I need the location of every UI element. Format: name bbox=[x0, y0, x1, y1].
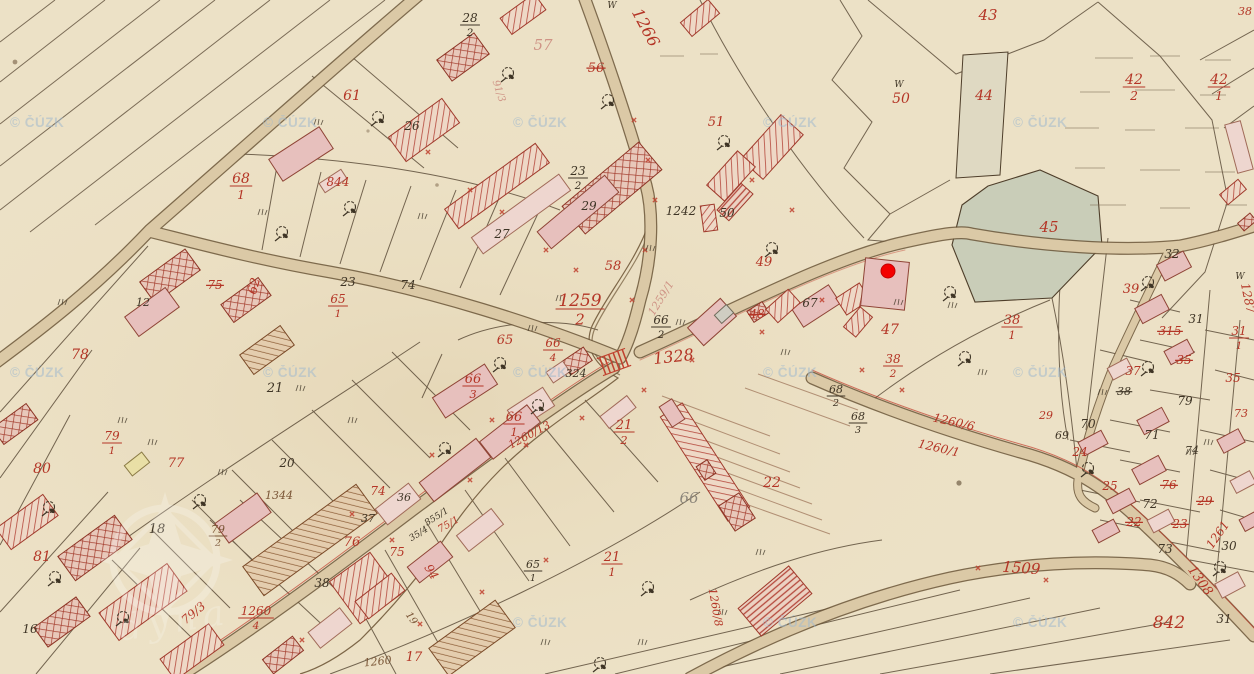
parcel-label: 65 bbox=[497, 333, 514, 348]
svg-text:324: 324 bbox=[566, 367, 587, 380]
svg-text:1: 1 bbox=[1236, 340, 1243, 352]
parcel-label: 844 bbox=[327, 175, 350, 189]
svg-text:42: 42 bbox=[1209, 72, 1228, 88]
parcel-label: 78 bbox=[71, 347, 89, 363]
parcel-label: 38 bbox=[1238, 5, 1252, 18]
svg-text:68: 68 bbox=[851, 410, 865, 423]
svg-text:81: 81 bbox=[33, 549, 51, 565]
parcel-label: 26 bbox=[403, 119, 420, 133]
svg-text:79: 79 bbox=[104, 429, 120, 443]
parcel-label: 17 bbox=[406, 650, 423, 665]
svg-text:50: 50 bbox=[719, 206, 735, 220]
parcel-label: 73 bbox=[1234, 407, 1248, 420]
parcel-label: 37 bbox=[1125, 364, 1141, 378]
parcel-label: 77 bbox=[168, 456, 185, 471]
parcel-label: 58 bbox=[605, 259, 622, 274]
svg-text:12: 12 bbox=[136, 296, 150, 309]
cuzk-watermark: © ČÚZK bbox=[10, 115, 64, 130]
svg-text:39: 39 bbox=[1123, 282, 1140, 297]
svg-text:74: 74 bbox=[370, 484, 385, 498]
parcel-label: 29 bbox=[580, 199, 597, 213]
parcel-label: 30 bbox=[1221, 539, 1237, 553]
parcel-label: 23 bbox=[1171, 517, 1189, 531]
svg-text:47: 47 bbox=[880, 322, 899, 338]
svg-text:31: 31 bbox=[1231, 324, 1246, 338]
svg-text:2: 2 bbox=[574, 180, 582, 192]
svg-text:24: 24 bbox=[1071, 445, 1087, 459]
cuzk-watermark: © ČÚZK bbox=[763, 115, 817, 130]
parcel-label: W bbox=[607, 1, 617, 11]
svg-text:17: 17 bbox=[406, 650, 423, 665]
svg-text:75: 75 bbox=[389, 545, 404, 559]
parcel-label: 71 bbox=[1144, 428, 1159, 442]
parcel-label: 35 bbox=[1225, 371, 1240, 385]
svg-text:66: 66 bbox=[679, 489, 699, 507]
parcel-label: 1509 bbox=[1002, 558, 1042, 579]
svg-text:22: 22 bbox=[762, 475, 781, 491]
svg-text:1: 1 bbox=[335, 308, 342, 320]
svg-text:21: 21 bbox=[603, 550, 621, 565]
parcel-label: 1344 bbox=[265, 489, 293, 502]
svg-text:2: 2 bbox=[619, 433, 627, 447]
svg-text:79: 79 bbox=[1177, 394, 1193, 408]
svg-text:43: 43 bbox=[977, 6, 997, 24]
svg-text:2: 2 bbox=[466, 27, 474, 39]
svg-text:38: 38 bbox=[1238, 5, 1252, 18]
parcel-label: 38 bbox=[314, 576, 330, 590]
svg-text:29: 29 bbox=[1038, 409, 1053, 422]
svg-text:2: 2 bbox=[889, 368, 897, 380]
svg-text:1509: 1509 bbox=[1002, 558, 1042, 579]
parcel-label: 38 bbox=[1116, 385, 1133, 398]
parcel-label: 23 bbox=[339, 275, 356, 289]
parcel-label: W bbox=[894, 80, 904, 90]
svg-text:3: 3 bbox=[855, 425, 861, 436]
svg-text:16: 16 bbox=[22, 622, 38, 636]
svg-text:20: 20 bbox=[278, 456, 295, 470]
cuzk-watermark: © ČÚZK bbox=[1013, 615, 1067, 630]
svg-text:45: 45 bbox=[1038, 218, 1058, 236]
svg-text:1259: 1259 bbox=[558, 291, 601, 311]
parcel-label: 29 bbox=[1196, 494, 1214, 508]
parcel-label: 75 bbox=[389, 545, 404, 559]
svg-text:80: 80 bbox=[33, 461, 51, 477]
parcel-label: 48 bbox=[748, 307, 766, 321]
svg-text:1: 1 bbox=[237, 188, 245, 202]
svg-text:38: 38 bbox=[885, 352, 901, 366]
svg-text:73: 73 bbox=[1234, 407, 1248, 420]
svg-text:W: W bbox=[1235, 272, 1245, 282]
cuzk-watermark: © ČÚZK bbox=[513, 115, 567, 130]
parcel-label: 27 bbox=[493, 227, 510, 241]
parcel-label: 1242 bbox=[666, 204, 697, 218]
parcel-label: 75 bbox=[206, 278, 224, 292]
parcel-label: 72 bbox=[1142, 497, 1157, 511]
cadastral-map-viewport[interactable]: 12664350444224213861844681575691/3514948… bbox=[0, 0, 1254, 674]
svg-text:30: 30 bbox=[1221, 539, 1237, 553]
svg-text:1: 1 bbox=[1215, 89, 1223, 103]
parcel-label: 56 bbox=[586, 61, 605, 76]
svg-text:38: 38 bbox=[314, 576, 330, 590]
svg-text:29: 29 bbox=[580, 199, 597, 213]
svg-text:1: 1 bbox=[530, 573, 536, 584]
svg-text:37: 37 bbox=[361, 512, 375, 525]
parcel-label: 39 bbox=[1123, 282, 1140, 297]
svg-text:44: 44 bbox=[974, 88, 993, 104]
parcel-label: 70 bbox=[1080, 417, 1096, 431]
map-marker-dot[interactable] bbox=[881, 264, 895, 278]
svg-text:32: 32 bbox=[1164, 247, 1179, 261]
svg-text:1: 1 bbox=[608, 565, 615, 579]
cuzk-watermark: © ČÚZK bbox=[513, 365, 567, 380]
svg-text:31: 31 bbox=[1216, 612, 1231, 626]
svg-text:37: 37 bbox=[1125, 364, 1141, 378]
svg-text:W: W bbox=[894, 80, 904, 90]
svg-text:58: 58 bbox=[605, 259, 622, 274]
parcel-label: 61 bbox=[343, 88, 361, 104]
svg-text:35: 35 bbox=[1225, 371, 1240, 385]
svg-text:23: 23 bbox=[569, 164, 586, 178]
parcel-label: 315 bbox=[1157, 324, 1183, 338]
svg-text:74: 74 bbox=[1185, 444, 1199, 457]
parcel-label: 47 bbox=[880, 322, 899, 338]
svg-text:3: 3 bbox=[469, 387, 476, 401]
svg-text:23: 23 bbox=[339, 275, 356, 289]
svg-text:26: 26 bbox=[403, 119, 420, 133]
parcel-label: 73 bbox=[1157, 542, 1173, 556]
svg-text:68: 68 bbox=[829, 383, 843, 396]
svg-text:68: 68 bbox=[232, 171, 250, 187]
svg-text:72: 72 bbox=[1142, 497, 1157, 511]
parcel-label: 31 bbox=[1216, 612, 1231, 626]
parcel-label: 74 bbox=[400, 278, 415, 292]
svg-text:842: 842 bbox=[1153, 613, 1185, 633]
parcel-label: 50 bbox=[892, 91, 910, 107]
parcel-label: 76 bbox=[1160, 478, 1178, 492]
parcel-label: 35 bbox=[1175, 353, 1193, 367]
parcel-label: 324 bbox=[566, 367, 587, 380]
parcel-label: 66 bbox=[679, 489, 699, 507]
parcel-label: 57 bbox=[533, 36, 553, 54]
svg-text:36: 36 bbox=[397, 491, 411, 504]
cuzk-watermark: © ČÚZK bbox=[1013, 365, 1067, 380]
parcel-label: 842 bbox=[1153, 613, 1185, 633]
svg-text:66: 66 bbox=[506, 410, 523, 425]
svg-text:4: 4 bbox=[252, 620, 260, 632]
parcel-label: 31 bbox=[1188, 312, 1203, 326]
cuzk-watermark: © ČÚZK bbox=[763, 615, 817, 630]
svg-text:38: 38 bbox=[1004, 313, 1021, 328]
parcel-label: 69 bbox=[1055, 429, 1069, 442]
svg-text:25: 25 bbox=[1101, 479, 1117, 493]
svg-text:1242: 1242 bbox=[666, 204, 697, 218]
parcel-label: 79 bbox=[1177, 394, 1193, 408]
parcel-label: 21 bbox=[266, 381, 284, 396]
svg-text:2: 2 bbox=[574, 311, 585, 329]
svg-text:W: W bbox=[607, 1, 617, 11]
svg-text:66: 66 bbox=[465, 372, 482, 387]
svg-text:42: 42 bbox=[1124, 72, 1143, 88]
parcel-label: 74 bbox=[1185, 444, 1199, 457]
svg-text:844: 844 bbox=[327, 175, 350, 189]
cuzk-watermark: © ČÚZK bbox=[263, 365, 317, 380]
svg-text:65: 65 bbox=[526, 558, 540, 571]
svg-text:74: 74 bbox=[400, 278, 415, 292]
parcel-label: 80 bbox=[33, 461, 51, 477]
svg-text:21: 21 bbox=[266, 381, 284, 396]
paper-speck bbox=[366, 129, 369, 132]
paper-speck bbox=[956, 480, 961, 485]
cuzk-watermark: © ČÚZK bbox=[513, 615, 567, 630]
parcel-label: 16 bbox=[22, 622, 38, 636]
parcel-label: 50 bbox=[719, 206, 735, 220]
svg-text:70: 70 bbox=[1080, 417, 1096, 431]
parcel-label: 32 bbox=[1164, 247, 1179, 261]
svg-text:50: 50 bbox=[892, 91, 910, 107]
svg-text:2: 2 bbox=[832, 398, 839, 409]
svg-text:51: 51 bbox=[708, 115, 725, 130]
parcel-label: 20 bbox=[278, 456, 295, 470]
paper-speck bbox=[13, 60, 18, 65]
svg-text:66: 66 bbox=[653, 313, 669, 327]
parcel-label: 22 bbox=[762, 475, 781, 491]
svg-text:1: 1 bbox=[109, 445, 116, 457]
svg-text:2: 2 bbox=[657, 329, 665, 341]
parcel-label: 76 bbox=[344, 535, 361, 550]
parcel-label: 51 bbox=[708, 115, 725, 130]
svg-text:49: 49 bbox=[755, 255, 773, 270]
cuzk-watermark: © ČÚZK bbox=[763, 365, 817, 380]
parcel-label: 74 bbox=[370, 484, 385, 498]
svg-text:77: 77 bbox=[168, 456, 185, 471]
parcel-label: 29 bbox=[1038, 409, 1053, 422]
parcel-label: 36 bbox=[397, 491, 411, 504]
svg-text:78: 78 bbox=[71, 347, 89, 363]
svg-text:65: 65 bbox=[330, 292, 345, 306]
svg-text:57: 57 bbox=[533, 36, 553, 54]
svg-text:1: 1 bbox=[1008, 328, 1015, 342]
parcel-label: 12 bbox=[136, 296, 150, 309]
svg-text:21: 21 bbox=[615, 418, 633, 433]
svg-text:31: 31 bbox=[1188, 312, 1203, 326]
svg-text:2: 2 bbox=[1129, 89, 1138, 103]
parcel-label: W bbox=[1235, 272, 1245, 282]
svg-text:1344: 1344 bbox=[265, 489, 293, 502]
parcel-label: 22 bbox=[1125, 515, 1143, 529]
svg-text:27: 27 bbox=[493, 227, 510, 241]
svg-text:65: 65 bbox=[497, 333, 514, 348]
parcel-label: 43 bbox=[977, 6, 997, 24]
parcel-label: 44 bbox=[974, 88, 993, 104]
cuzk-watermark: © ČÚZK bbox=[263, 115, 317, 130]
svg-text:1260: 1260 bbox=[241, 604, 272, 618]
cuzk-watermark: © ČÚZK bbox=[10, 365, 64, 380]
svg-text:67: 67 bbox=[802, 296, 818, 310]
parcel-label: 24 bbox=[1071, 445, 1087, 459]
cadastral-map-image[interactable]: 12664350444224213861844681575691/3514948… bbox=[0, 0, 1254, 674]
svg-text:28: 28 bbox=[461, 11, 478, 25]
svg-text:66: 66 bbox=[545, 336, 561, 350]
building bbox=[700, 204, 717, 232]
parcel-label: 37 bbox=[361, 512, 375, 525]
parcel-label: 67 bbox=[802, 296, 818, 310]
cuzk-watermark: © ČÚZK bbox=[1013, 115, 1067, 130]
parcel-label: 49 bbox=[755, 255, 773, 270]
parcel-label: 45 bbox=[1038, 218, 1058, 236]
svg-text:4: 4 bbox=[549, 352, 557, 364]
paper-speck bbox=[435, 183, 439, 187]
parcel-label: 81 bbox=[33, 549, 51, 565]
svg-text:76: 76 bbox=[344, 535, 361, 550]
svg-text:61: 61 bbox=[343, 88, 361, 104]
svg-text:71: 71 bbox=[1144, 428, 1159, 442]
parcel-strip-44 bbox=[956, 52, 1008, 178]
svg-text:69: 69 bbox=[1055, 429, 1069, 442]
svg-text:73: 73 bbox=[1157, 542, 1173, 556]
parcel-label: 25 bbox=[1101, 479, 1117, 493]
